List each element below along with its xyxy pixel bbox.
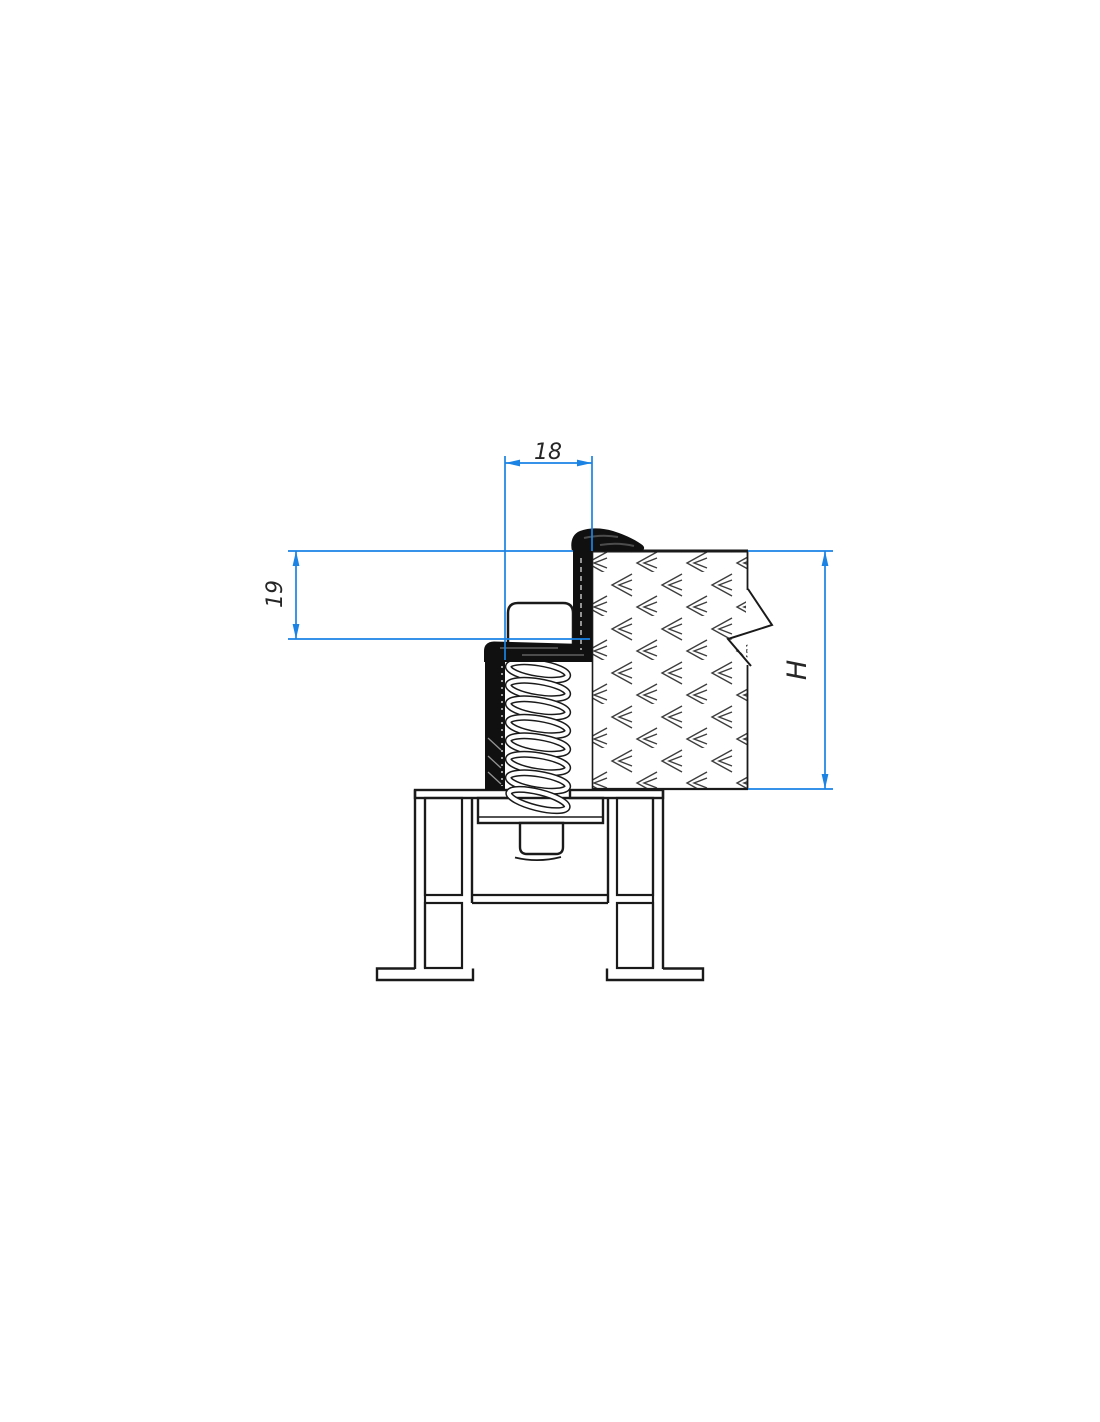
profile-left-hollow-lower: [425, 903, 462, 968]
arrowhead: [293, 551, 300, 566]
arrowhead: [505, 460, 520, 467]
top-gasket: [571, 528, 644, 551]
screw-tip-line: [515, 857, 561, 860]
compression-spring: [507, 658, 569, 815]
dimension-label: 19: [263, 580, 288, 608]
profile-top-plate-left: [415, 790, 510, 798]
arrowhead: [577, 460, 592, 467]
arrowhead: [293, 624, 300, 639]
arrowhead: [822, 551, 829, 566]
profile-top-plate-right: [570, 790, 663, 798]
door-panel: [590, 551, 774, 789]
profile-left-foot: [377, 969, 473, 981]
spring-coil: [507, 658, 569, 815]
dimension-label: 18: [534, 440, 562, 465]
cross-section-drawing: 18 19 H: [0, 0, 1100, 1422]
profile-right-foot: [607, 969, 703, 981]
profile-left-hollow-upper: [425, 798, 462, 895]
profile-right-hollow-upper: [617, 798, 653, 895]
seal-edge-strip: [573, 549, 592, 660]
profile-right-hollow-lower: [617, 903, 653, 968]
dimension-label: H: [782, 660, 813, 680]
door-panel-hatch: [593, 551, 748, 789]
technical-drawing-canvas: 18 19 H: [0, 0, 1100, 1422]
arrowhead: [822, 774, 829, 789]
top-gasket-body: [571, 528, 644, 551]
screw-body: [520, 823, 563, 854]
dimension-height-H: H: [748, 551, 833, 789]
